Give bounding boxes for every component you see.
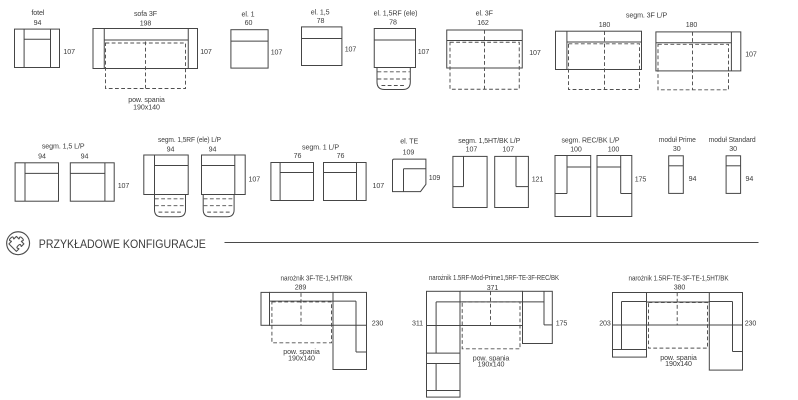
svg-text:162: 162 bbox=[477, 19, 489, 27]
svg-text:109: 109 bbox=[429, 174, 441, 182]
svg-text:94: 94 bbox=[81, 153, 89, 161]
svg-text:107: 107 bbox=[529, 49, 541, 57]
svg-text:76: 76 bbox=[294, 152, 302, 160]
svg-text:230: 230 bbox=[745, 319, 757, 327]
svg-text:107: 107 bbox=[63, 48, 75, 56]
svg-text:311: 311 bbox=[412, 319, 423, 327]
svg-text:segm. 1,5RF (ele) L/P: segm. 1,5RF (ele) L/P bbox=[158, 136, 221, 144]
svg-text:107: 107 bbox=[745, 50, 757, 58]
svg-text:107: 107 bbox=[248, 176, 260, 184]
svg-text:narożnik 1.5RF-Mod-Prime1,5RF-: narożnik 1.5RF-Mod-Prime1,5RF-TE-3F-REC/… bbox=[429, 274, 559, 282]
svg-text:el. TE: el. TE bbox=[400, 137, 418, 145]
svg-text:94: 94 bbox=[746, 175, 754, 183]
svg-text:100: 100 bbox=[570, 146, 582, 154]
svg-text:segm. 1 L/P: segm. 1 L/P bbox=[302, 144, 339, 152]
svg-text:moduł Standard: moduł Standard bbox=[709, 136, 756, 144]
svg-text:76: 76 bbox=[337, 152, 345, 160]
svg-text:fotel: fotel bbox=[31, 9, 45, 17]
svg-text:230: 230 bbox=[372, 319, 384, 327]
svg-text:175: 175 bbox=[635, 176, 647, 184]
svg-text:94: 94 bbox=[34, 19, 42, 27]
svg-text:sofa 3F: sofa 3F bbox=[134, 10, 158, 18]
svg-text:narożnik 3F-TE-1,5HT/BK: narożnik 3F-TE-1,5HT/BK bbox=[281, 275, 353, 283]
svg-text:78: 78 bbox=[317, 17, 325, 25]
svg-text:198: 198 bbox=[140, 20, 152, 28]
svg-text:107: 107 bbox=[466, 146, 478, 154]
svg-text:107: 107 bbox=[418, 48, 430, 56]
svg-text:107: 107 bbox=[372, 182, 384, 190]
svg-text:el. 3F: el. 3F bbox=[476, 9, 494, 17]
svg-text:289: 289 bbox=[295, 283, 307, 291]
svg-text:107: 107 bbox=[502, 146, 514, 154]
svg-text:78: 78 bbox=[389, 19, 397, 27]
svg-text:94: 94 bbox=[209, 146, 217, 154]
svg-text:30: 30 bbox=[673, 145, 681, 153]
svg-text:190x140: 190x140 bbox=[478, 361, 505, 369]
svg-text:175: 175 bbox=[556, 319, 568, 327]
svg-text:segm. REC/BK L/P: segm. REC/BK L/P bbox=[562, 137, 620, 145]
svg-text:el. 1,5RF (ele): el. 1,5RF (ele) bbox=[374, 9, 418, 17]
svg-text:121: 121 bbox=[532, 176, 544, 184]
svg-text:60: 60 bbox=[245, 19, 253, 27]
svg-text:PRZYKŁADOWE KONFIGURACJE: PRZYKŁADOWE KONFIGURACJE bbox=[39, 237, 206, 251]
svg-text:180: 180 bbox=[599, 21, 611, 29]
svg-text:180: 180 bbox=[686, 21, 698, 29]
svg-text:segm. 1,5 L/P: segm. 1,5 L/P bbox=[42, 143, 85, 151]
svg-text:94: 94 bbox=[38, 153, 46, 161]
svg-text:segm. 3F L/P: segm. 3F L/P bbox=[626, 11, 668, 19]
svg-text:moduł Prime: moduł Prime bbox=[659, 136, 696, 144]
svg-text:107: 107 bbox=[271, 49, 283, 57]
svg-text:107: 107 bbox=[200, 48, 212, 56]
svg-text:190x140: 190x140 bbox=[288, 355, 315, 363]
svg-text:190x140: 190x140 bbox=[133, 103, 160, 111]
svg-text:100: 100 bbox=[608, 146, 620, 154]
svg-text:el. 1,5: el. 1,5 bbox=[311, 8, 330, 16]
svg-text:107: 107 bbox=[118, 182, 130, 190]
svg-text:el. 1: el. 1 bbox=[241, 11, 254, 19]
svg-text:94: 94 bbox=[689, 175, 697, 183]
svg-text:narożnik 1.5RF-TE-3F-TE-1,5HT/: narożnik 1.5RF-TE-3F-TE-1,5HT/BK bbox=[629, 275, 729, 283]
svg-text:380: 380 bbox=[674, 283, 686, 291]
svg-text:94: 94 bbox=[167, 146, 175, 154]
svg-text:107: 107 bbox=[345, 46, 357, 54]
svg-text:109: 109 bbox=[403, 149, 415, 157]
svg-text:190x140: 190x140 bbox=[665, 360, 692, 368]
svg-text:30: 30 bbox=[729, 145, 737, 153]
svg-text:segm. 1,5HT/BK L/P: segm. 1,5HT/BK L/P bbox=[458, 137, 520, 145]
svg-text:203: 203 bbox=[599, 319, 611, 327]
